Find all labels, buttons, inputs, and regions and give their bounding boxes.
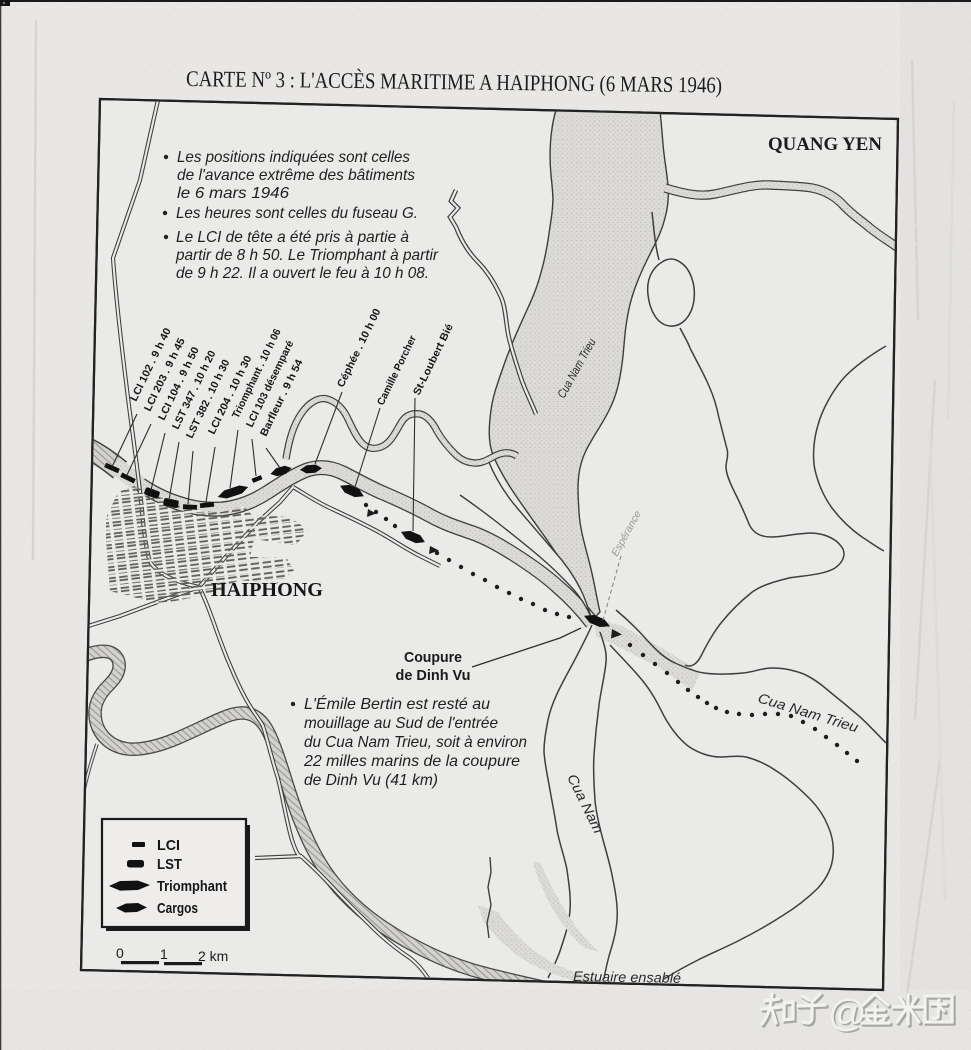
svg-text:LCI: LCI — [157, 837, 180, 854]
svg-text:@: @ — [828, 993, 867, 1035]
svg-text:1: 1 — [160, 946, 168, 962]
svg-text:de Dinh Vu: de Dinh Vu — [396, 667, 471, 684]
svg-text:de l'avance extrême des bâtime: de l'avance extrême des bâtiments — [177, 167, 415, 184]
svg-text:Cargos: Cargos — [157, 900, 198, 917]
svg-text:Les positions indiquées sont c: Les positions indiquées sont celles — [177, 149, 410, 166]
svg-text:L'Émile Bertin est resté au: L'Émile Bertin est resté au — [304, 694, 490, 713]
svg-text:22 milles marins de la coupure: 22 milles marins de la coupure — [303, 753, 520, 770]
svg-text:mouillage au Sud de l'entrée: mouillage au Sud de l'entrée — [304, 715, 498, 732]
svg-text:partir de 8 h 50. Le Triomphan: partir de 8 h 50. Le Triomphant à partir — [175, 247, 439, 264]
svg-text:LST: LST — [157, 856, 182, 873]
svg-text:Triomphant: Triomphant — [157, 878, 227, 895]
svg-text:du Cua Nam Trieu, soit à envir: du Cua Nam Trieu, soit à environ — [304, 734, 527, 751]
svg-text:Estuaire ensablé: Estuaire ensablé — [573, 968, 681, 986]
svg-text:Coupure: Coupure — [404, 649, 462, 666]
svg-text:le 6 mars 1946: le 6 mars 1946 — [177, 185, 289, 202]
svg-text:de 9 h 22. Il a ouvert le feu: de 9 h 22. Il a ouvert le feu à 10 h 08. — [176, 265, 429, 282]
svg-text:Les heures sont celles du fuse: Les heures sont celles du fuseau G. — [176, 205, 418, 222]
svg-text:0: 0 — [116, 945, 124, 961]
svg-text:HAIPHONG: HAIPHONG — [211, 579, 323, 601]
svg-text:de Dinh Vu (41 km): de Dinh Vu (41 km) — [304, 772, 438, 789]
svg-text:Le LCI de tête a été pris à pa: Le LCI de tête a été pris à partie à — [176, 229, 409, 246]
svg-text:QUANG YEN: QUANG YEN — [768, 134, 882, 155]
svg-text:2 km: 2 km — [198, 948, 228, 964]
